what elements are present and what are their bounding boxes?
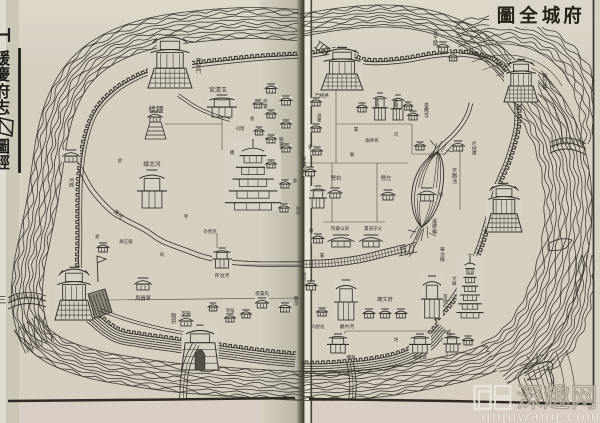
svg-text:天鵝池: 天鵝池 xyxy=(452,167,457,185)
svg-text:院書山梁: 院書山梁 xyxy=(331,225,349,232)
svg-text:圖: 圖 xyxy=(0,138,10,156)
svg-text:尼姑庵: 尼姑庵 xyxy=(472,141,477,157)
svg-text:壇農先: 壇農先 xyxy=(255,290,269,297)
svg-text:倉豫: 倉豫 xyxy=(394,98,399,109)
svg-text:善應寺: 善應寺 xyxy=(424,102,429,119)
svg-text:圖: 圖 xyxy=(497,6,516,27)
svg-text:經: 經 xyxy=(0,153,10,172)
svg-text:城: 城 xyxy=(542,5,561,27)
svg-text:廟王龍: 廟王龍 xyxy=(119,238,133,245)
svg-text:全: 全 xyxy=(518,5,538,27)
svg-text:坊: 坊 xyxy=(394,336,399,343)
svg-text:宮清玉: 宮清玉 xyxy=(209,86,227,94)
svg-text:濯纓楊: 濯纓楊 xyxy=(432,218,437,235)
svg-text:廟文府: 廟文府 xyxy=(377,295,393,303)
svg-text:慶: 慶 xyxy=(0,65,10,84)
svg-text:倉府: 倉府 xyxy=(375,98,380,110)
svg-text:廟神馬: 廟神馬 xyxy=(365,137,379,144)
svg-text:斈府: 斈府 xyxy=(443,293,448,305)
svg-text:道署: 道署 xyxy=(317,112,322,124)
svg-text:所泊河: 所泊河 xyxy=(215,272,230,279)
svg-text:倉: 倉 xyxy=(118,157,123,164)
svg-text:斈縣: 斈縣 xyxy=(181,310,191,317)
svg-text:府: 府 xyxy=(0,82,10,101)
svg-text:斈陰: 斈陰 xyxy=(226,307,235,314)
svg-text:樓: 樓 xyxy=(230,149,235,156)
svg-text:營左: 營左 xyxy=(381,174,392,182)
svg-text:楼鐘: 楼鐘 xyxy=(149,104,164,114)
svg-text:文閣: 文閣 xyxy=(447,328,452,340)
svg-text:司理: 司理 xyxy=(236,126,245,131)
svg-text:署道守分: 署道守分 xyxy=(364,225,382,232)
svg-text:廟隍城: 廟隍城 xyxy=(413,354,427,361)
svg-text:華沽縣: 華沽縣 xyxy=(440,246,445,263)
svg-text:緩: 緩 xyxy=(0,49,11,68)
svg-text:qiquwang.com: qiquwang.com xyxy=(481,409,600,423)
svg-text:倉: 倉 xyxy=(95,233,100,240)
svg-text:司: 司 xyxy=(394,132,399,137)
svg-text:嘉王閣: 嘉王閣 xyxy=(433,30,438,47)
svg-text:樓魁: 樓魁 xyxy=(347,354,356,361)
svg-text:鎮北河: 鎮北河 xyxy=(143,160,161,168)
svg-text:齊安門: 齊安門 xyxy=(196,56,202,75)
svg-text:三: 三 xyxy=(0,295,7,305)
svg-text:府: 府 xyxy=(563,5,582,27)
svg-text:倉: 倉 xyxy=(250,115,255,122)
svg-text:局器軍: 局器軍 xyxy=(135,295,151,302)
svg-text:營右: 營右 xyxy=(331,174,342,182)
svg-text:縣署: 縣署 xyxy=(279,136,284,148)
svg-text:陽拱: 陽拱 xyxy=(171,312,177,326)
svg-text:司歷經: 司歷經 xyxy=(312,323,325,330)
svg-text:志: 志 xyxy=(0,98,10,117)
svg-text:府署: 府署 xyxy=(263,98,268,110)
svg-text:廟: 廟 xyxy=(350,151,355,158)
svg-text:寺: 寺 xyxy=(184,214,189,219)
svg-text:文峰: 文峰 xyxy=(452,275,457,287)
svg-text:河西: 河西 xyxy=(69,177,74,189)
svg-text:醫斈: 醫斈 xyxy=(294,296,299,306)
svg-text:亭善旌: 亭善旌 xyxy=(203,228,217,235)
svg-text:郭巨樓: 郭巨樓 xyxy=(542,72,548,91)
svg-text:察院: 察院 xyxy=(302,271,307,283)
svg-text:廳內河: 廳內河 xyxy=(340,323,355,330)
svg-text:廟: 廟 xyxy=(309,227,314,234)
